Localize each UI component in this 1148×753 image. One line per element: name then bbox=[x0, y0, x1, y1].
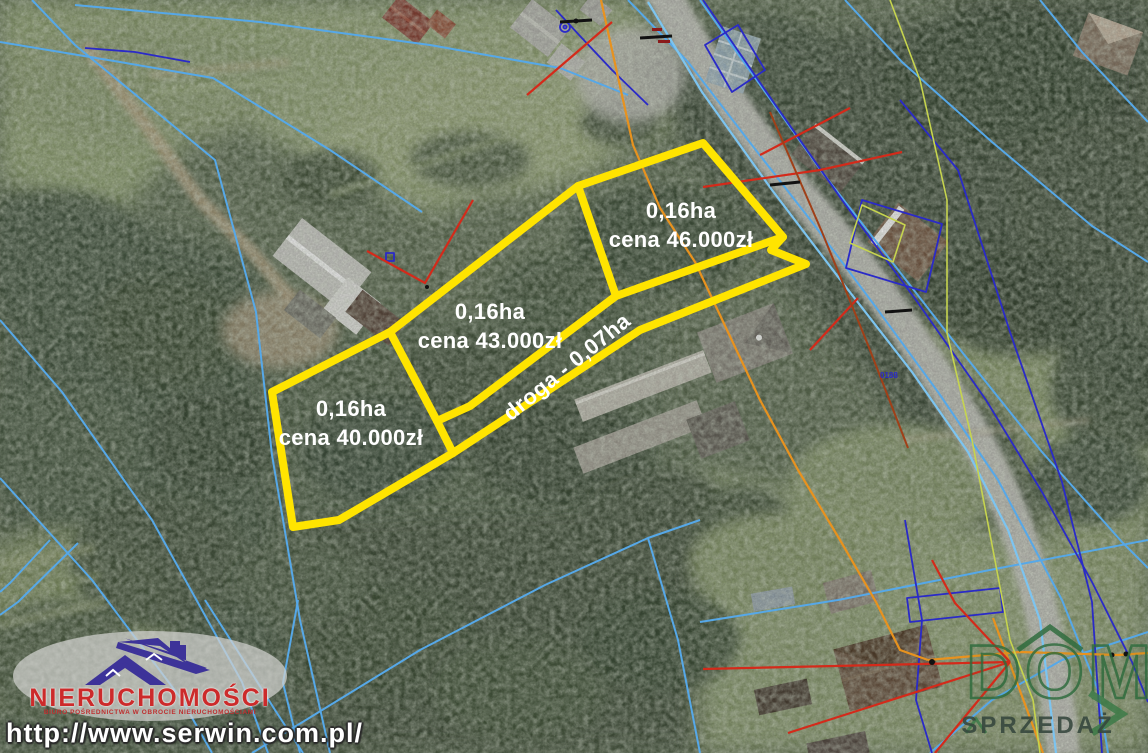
listing-type-label: SPRZEDAŻ bbox=[961, 712, 1114, 740]
parcel-price: cena 40.000zł bbox=[279, 423, 424, 452]
survey-point-number: 0188 bbox=[880, 371, 898, 380]
parcel-label-40000: 0,16ha cena 40.000zł bbox=[279, 394, 424, 452]
listing-brand-text: DOM bbox=[966, 630, 1148, 715]
agency-website-url: http://www.serwin.com.pl/ bbox=[6, 718, 363, 749]
aerial-map-image: DOM 0,16ha cena 46.000zł 0,16ha cena 43.… bbox=[0, 0, 1148, 753]
parcel-area: 0,16ha bbox=[646, 198, 716, 223]
parcel-area: 0,16ha bbox=[455, 299, 525, 324]
parcel-price: cena 43.000zł bbox=[418, 326, 563, 355]
parcel-area: 0,16ha bbox=[316, 396, 386, 421]
agency-tagline: BIURO POŚREDNICTWA W OBROCIE NIERUCHOMOŚ… bbox=[44, 709, 256, 716]
parcel-label-43000: 0,16ha cena 43.000zł bbox=[418, 297, 563, 355]
parcel-label-46000: 0,16ha cena 46.000zł bbox=[609, 196, 754, 254]
parcel-price: cena 46.000zł bbox=[609, 225, 754, 254]
